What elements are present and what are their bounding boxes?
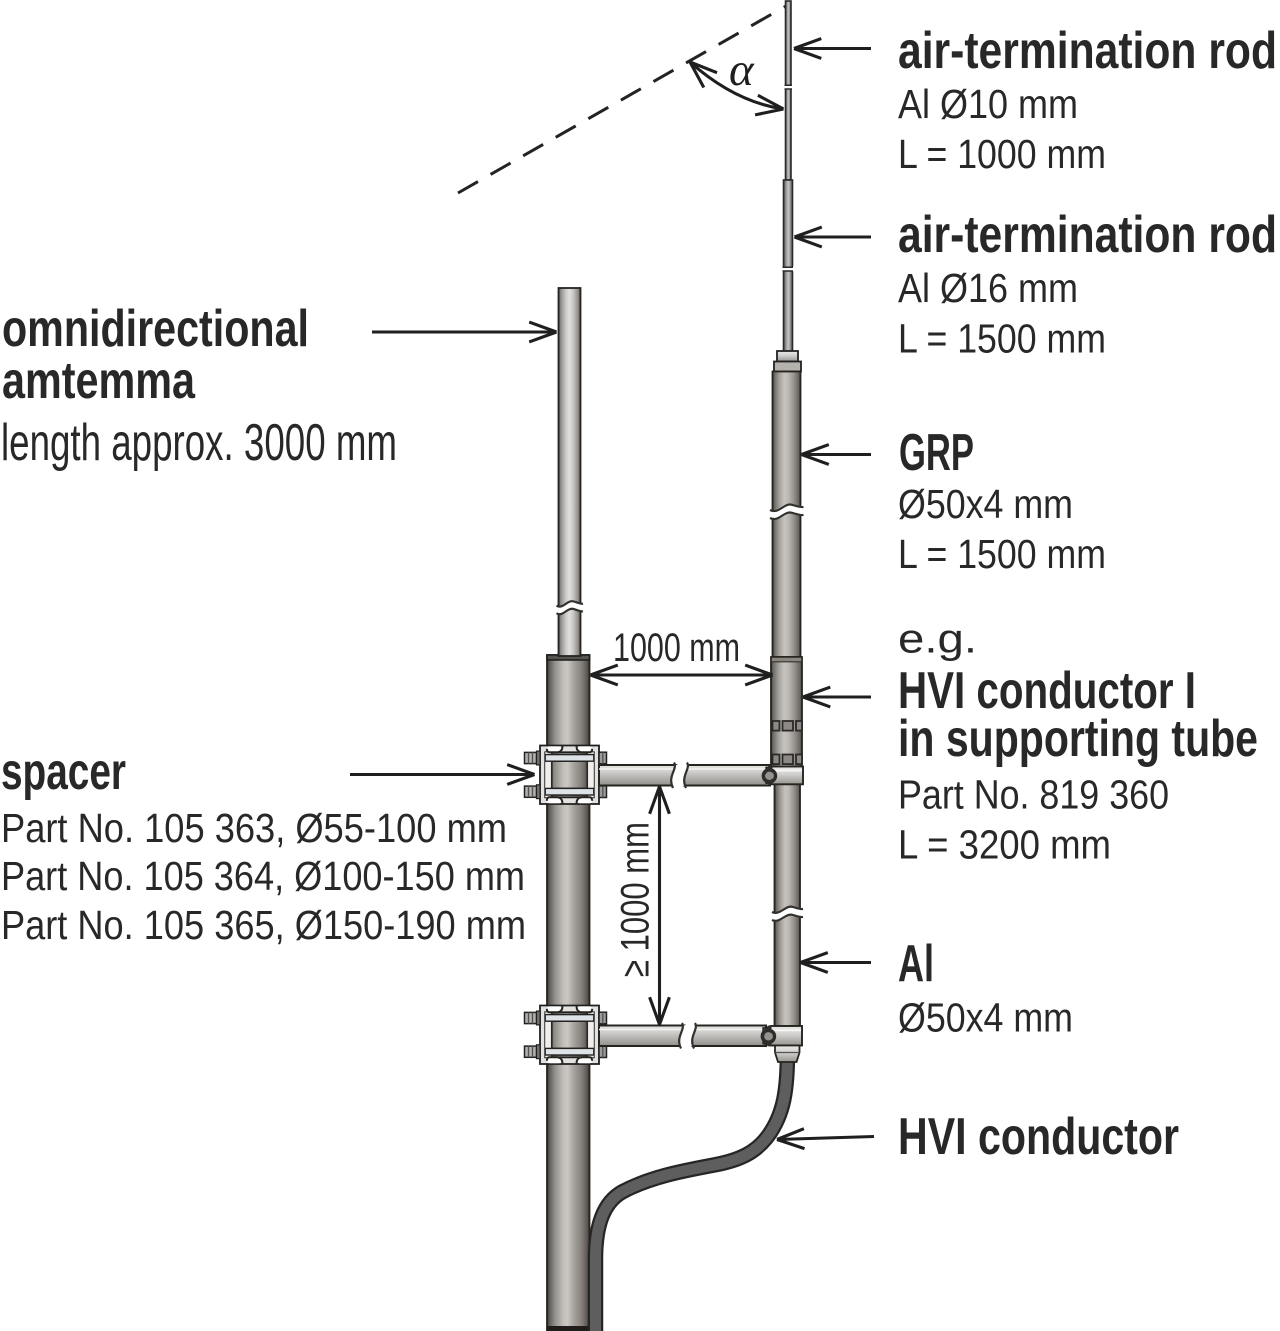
- svg-text:α: α: [729, 44, 755, 96]
- svg-text:≥ 1000 mm: ≥ 1000 mm: [614, 822, 658, 977]
- svg-text:GRP: GRP: [899, 424, 974, 482]
- svg-text:L = 1500 mm: L = 1500 mm: [898, 316, 1106, 362]
- svg-text:length approx. 3000 mm: length approx. 3000 mm: [1, 414, 397, 472]
- svg-text:Part No. 105 365, Ø150-190 mm: Part No. 105 365, Ø150-190 mm: [1, 902, 526, 948]
- svg-text:L = 1500 mm: L = 1500 mm: [898, 531, 1106, 577]
- svg-text:Al: Al: [898, 935, 934, 993]
- svg-text:air-termination rod: air-termination rod: [898, 22, 1277, 80]
- svg-text:Part No. 105 364, Ø100-150 mm: Part No. 105 364, Ø100-150 mm: [1, 853, 525, 899]
- svg-text:e.g.: e.g.: [898, 616, 977, 662]
- svg-text:in supporting tube: in supporting tube: [898, 710, 1258, 768]
- svg-text:L = 3200 mm: L = 3200 mm: [898, 822, 1111, 868]
- svg-text:spacer: spacer: [1, 743, 126, 801]
- svg-text:Ø50x4 mm: Ø50x4 mm: [898, 481, 1073, 527]
- svg-text:1000 mm: 1000 mm: [613, 626, 740, 670]
- svg-text:L = 1000 mm: L = 1000 mm: [898, 131, 1106, 177]
- svg-text:HVI conductor: HVI conductor: [898, 1108, 1179, 1166]
- svg-text:Al Ø10 mm: Al Ø10 mm: [898, 81, 1078, 127]
- svg-text:omnidirectional: omnidirectional: [2, 300, 309, 358]
- svg-text:Part No. 105 363, Ø55-100 mm: Part No. 105 363, Ø55-100 mm: [1, 805, 507, 851]
- svg-text:Al Ø16 mm: Al Ø16 mm: [898, 265, 1078, 311]
- svg-text:Ø50x4 mm: Ø50x4 mm: [898, 995, 1073, 1041]
- svg-text:amtemma: amtemma: [2, 352, 196, 410]
- svg-text:air-termination rod: air-termination rod: [898, 206, 1277, 264]
- svg-text:Part No. 819 360: Part No. 819 360: [898, 772, 1169, 818]
